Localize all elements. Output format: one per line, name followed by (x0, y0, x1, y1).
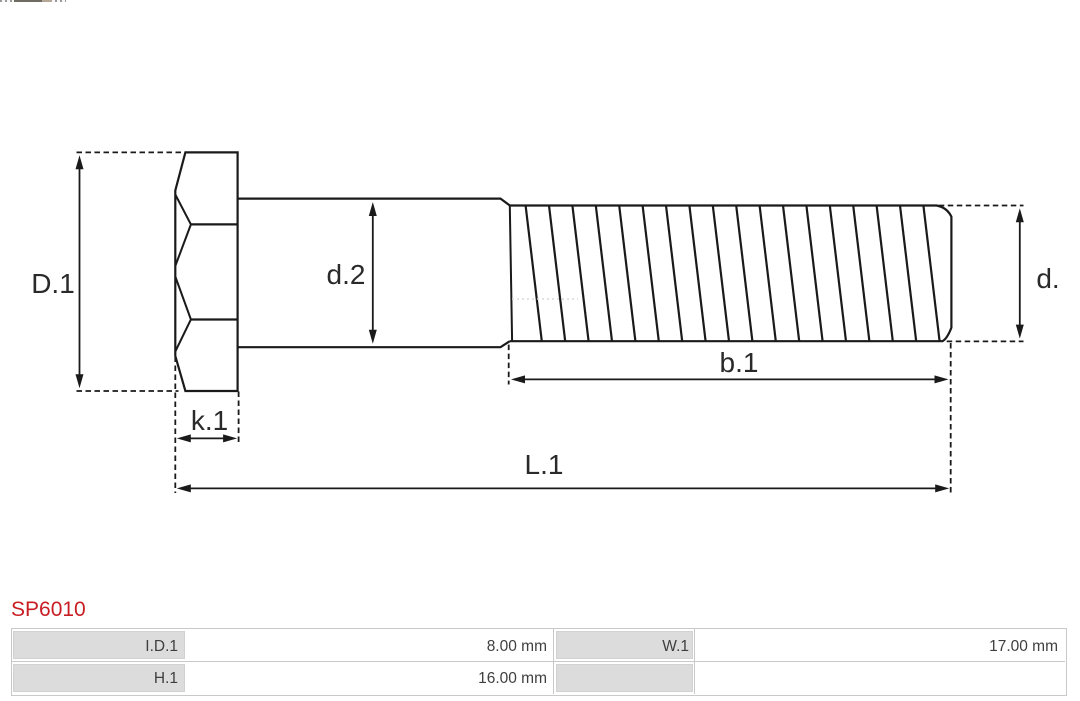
svg-text:D.1: D.1 (31, 268, 75, 299)
svg-text:d.2: d.2 (327, 259, 366, 290)
svg-text:L.1: L.1 (525, 449, 564, 480)
svg-text:k.1: k.1 (191, 405, 228, 436)
svg-text:d.: d. (1036, 263, 1059, 294)
svg-text:b.1: b.1 (720, 347, 759, 378)
